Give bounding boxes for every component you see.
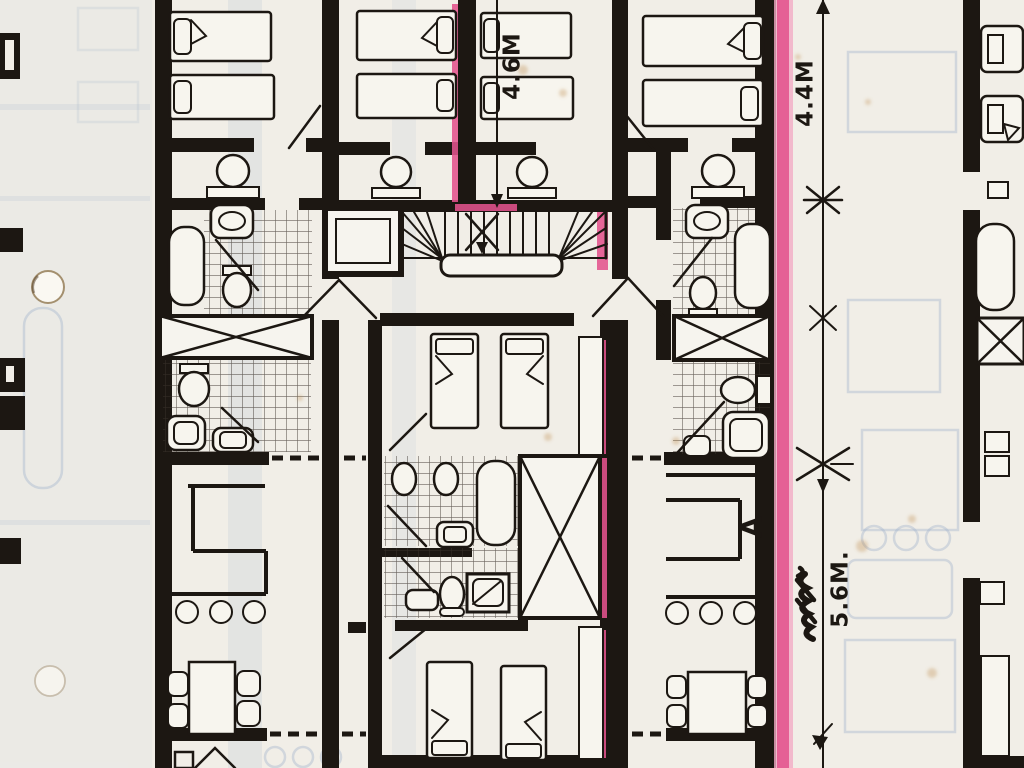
bathtub: [169, 227, 204, 305]
elevator: [322, 206, 401, 276]
chair: [667, 676, 686, 698]
center-shaft: [520, 456, 600, 618]
shower: [167, 416, 205, 450]
closet: [981, 656, 1009, 756]
bathtub: [735, 224, 770, 308]
stool: [243, 601, 265, 623]
right-shaft: [674, 316, 770, 360]
bed: [981, 26, 1023, 72]
sink: [437, 522, 473, 547]
dimension-label: 4.4M: [793, 59, 819, 127]
left-shaft: [160, 316, 312, 358]
bed: [501, 666, 546, 760]
bathtub: [976, 224, 1014, 310]
center-bathroom-upper: [384, 456, 518, 547]
table: [688, 672, 746, 734]
bed: [431, 334, 478, 428]
toilet: [686, 205, 728, 238]
toilet: [440, 577, 464, 616]
stool: [210, 601, 232, 623]
chair: [168, 704, 188, 728]
bed: [501, 334, 548, 428]
toilet: [223, 266, 251, 307]
bed: [481, 77, 573, 119]
scanned-floorplan-page: A 4.6M 4.4M 5.6M.: [0, 0, 1024, 768]
punch-hole: [35, 666, 65, 696]
bed: [643, 16, 763, 66]
stool: [666, 602, 688, 624]
bed: [170, 12, 271, 61]
chair: [748, 705, 767, 727]
bed: [357, 74, 456, 118]
toilet: [689, 277, 717, 317]
toilet: [179, 364, 209, 406]
closet: [579, 337, 603, 457]
punch-hole: [32, 271, 64, 303]
stool: [700, 602, 722, 624]
room-letter-label: A: [735, 516, 768, 538]
toilet: [721, 376, 771, 404]
shower: [467, 574, 509, 612]
floorplan-drawing: A 4.6M 4.4M 5.6M.: [0, 0, 1024, 768]
dimension-label: 5.6M.: [828, 550, 854, 627]
toilet: [392, 463, 416, 495]
bidet: [434, 463, 458, 495]
left-bathroom-lower: [163, 360, 311, 452]
bed: [481, 13, 571, 58]
closet: [579, 627, 603, 759]
sink: [684, 436, 710, 456]
chair: [748, 676, 767, 698]
stair-landing: [441, 255, 562, 276]
stool: [176, 601, 198, 623]
toilet: [211, 205, 253, 238]
sink: [406, 590, 438, 610]
bed: [357, 11, 456, 60]
bed: [643, 80, 763, 126]
shower: [723, 412, 769, 458]
bed: [427, 662, 472, 758]
table: [189, 662, 235, 734]
bathtub: [477, 461, 515, 545]
chair: [237, 671, 260, 696]
center-bathroom-lower: [384, 548, 518, 618]
stool: [734, 602, 756, 624]
shaft: [977, 318, 1024, 364]
bed: [981, 96, 1023, 142]
chair: [168, 672, 188, 696]
bed: [170, 75, 274, 119]
chair: [237, 701, 260, 726]
right-bathroom-lower: [673, 362, 771, 458]
chair: [667, 705, 686, 727]
